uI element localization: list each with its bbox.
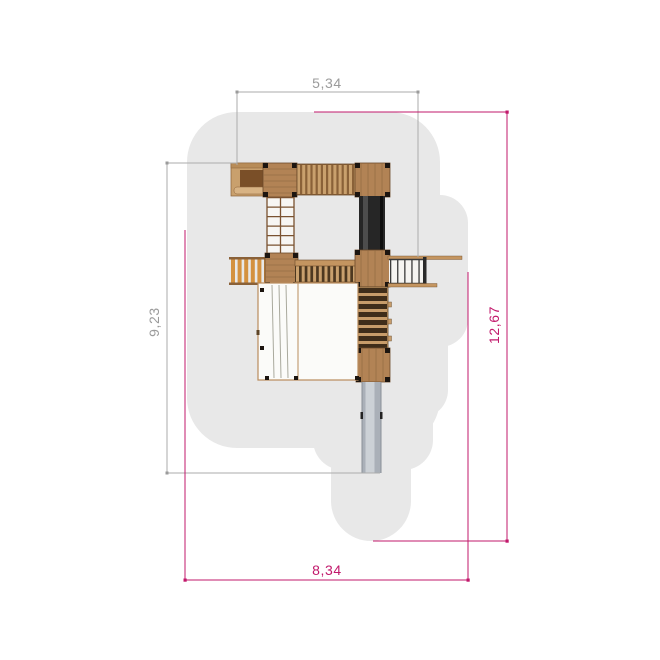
top-slat-bridge: [297, 164, 357, 195]
plan-canvas: 5,34 9,23 12,67 8,34: [0, 0, 660, 660]
dimension-label-bottom: 8,34: [312, 562, 342, 578]
plan-drawing: [0, 0, 660, 660]
platform-bottom: [356, 348, 390, 382]
net-frame-panels: [257, 283, 360, 380]
platform-top-right: [355, 163, 390, 197]
platform-mid-left: [265, 253, 298, 287]
top-exit-slide: [231, 163, 267, 196]
platform-top-left: [263, 163, 297, 197]
tunnel-tube: [359, 196, 385, 258]
dimension-label-top: 5,34: [312, 75, 342, 91]
climbing-ladder-left: [267, 197, 295, 255]
platform-mid-right: [355, 250, 390, 287]
dimension-label-left: 9,23: [146, 307, 162, 337]
staircase: [354, 287, 392, 349]
dimension-label-right: 12,67: [486, 306, 502, 344]
main-slide: [361, 382, 383, 473]
